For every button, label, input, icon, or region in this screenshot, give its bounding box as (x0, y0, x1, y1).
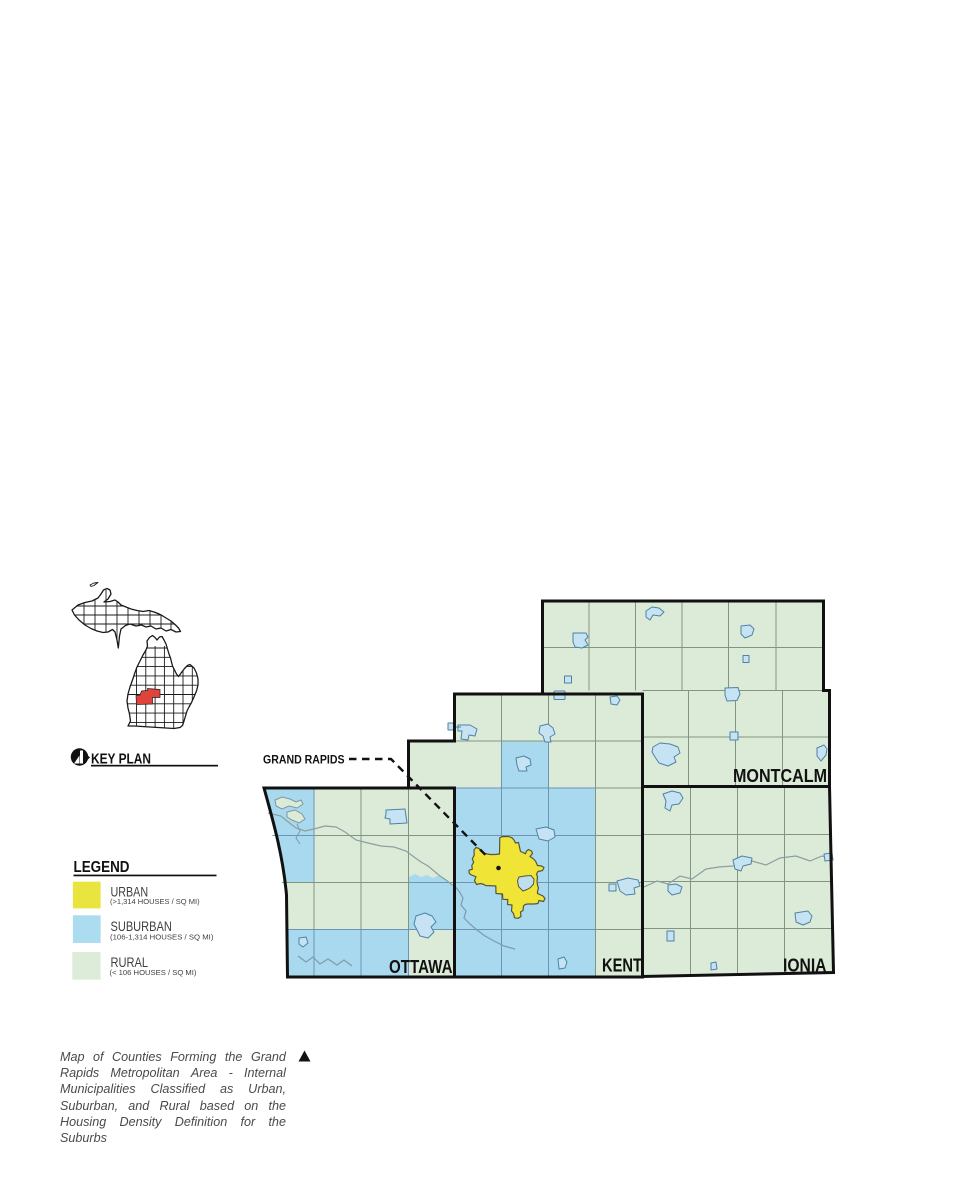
svg-text:(< 106 HOUSES / SQ MI): (< 106 HOUSES / SQ MI) (110, 968, 197, 977)
svg-text:KENT: KENT (602, 956, 642, 976)
svg-text:(106-1,314 HOUSES / SQ MI): (106-1,314 HOUSES / SQ MI) (110, 932, 213, 941)
svg-text:IONIA: IONIA (783, 956, 827, 976)
svg-text:MONTCALM: MONTCALM (733, 766, 827, 786)
svg-text:(>1,314 HOUSES / SQ MI): (>1,314 HOUSES / SQ MI) (110, 897, 200, 906)
svg-text:GRAND RAPIDS: GRAND RAPIDS (263, 753, 345, 767)
svg-text:OTTAWA: OTTAWA (389, 957, 453, 977)
svg-text:LEGEND: LEGEND (74, 859, 130, 876)
